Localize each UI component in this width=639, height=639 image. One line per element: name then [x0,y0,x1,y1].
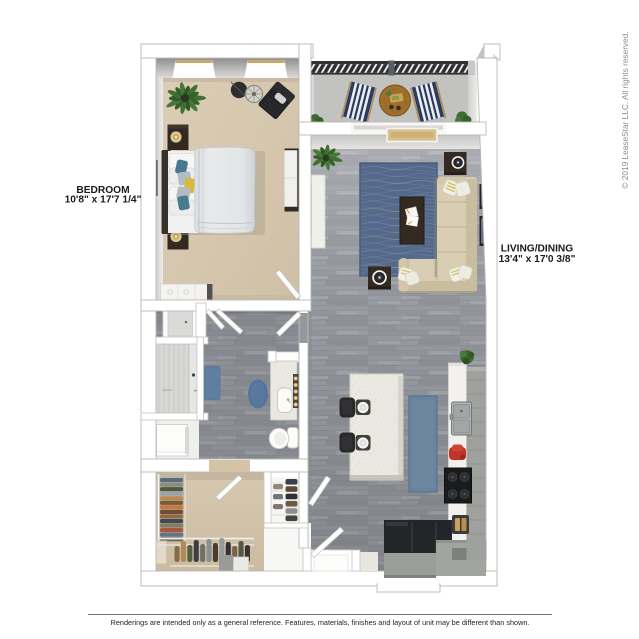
svg-text:Renderings are intended only a: Renderings are intended only as a genera… [111,618,530,627]
svg-text:10'8" x 17'7 1/4": 10'8" x 17'7 1/4" [65,195,142,206]
svg-text:LIVING/DINING: LIVING/DINING [501,244,574,255]
svg-text:13'4" x 17'0 3/8": 13'4" x 17'0 3/8" [499,254,576,265]
svg-text:© 2019 LeaseStar LLC. All righ: © 2019 LeaseStar LLC. All rights reserve… [620,31,630,188]
